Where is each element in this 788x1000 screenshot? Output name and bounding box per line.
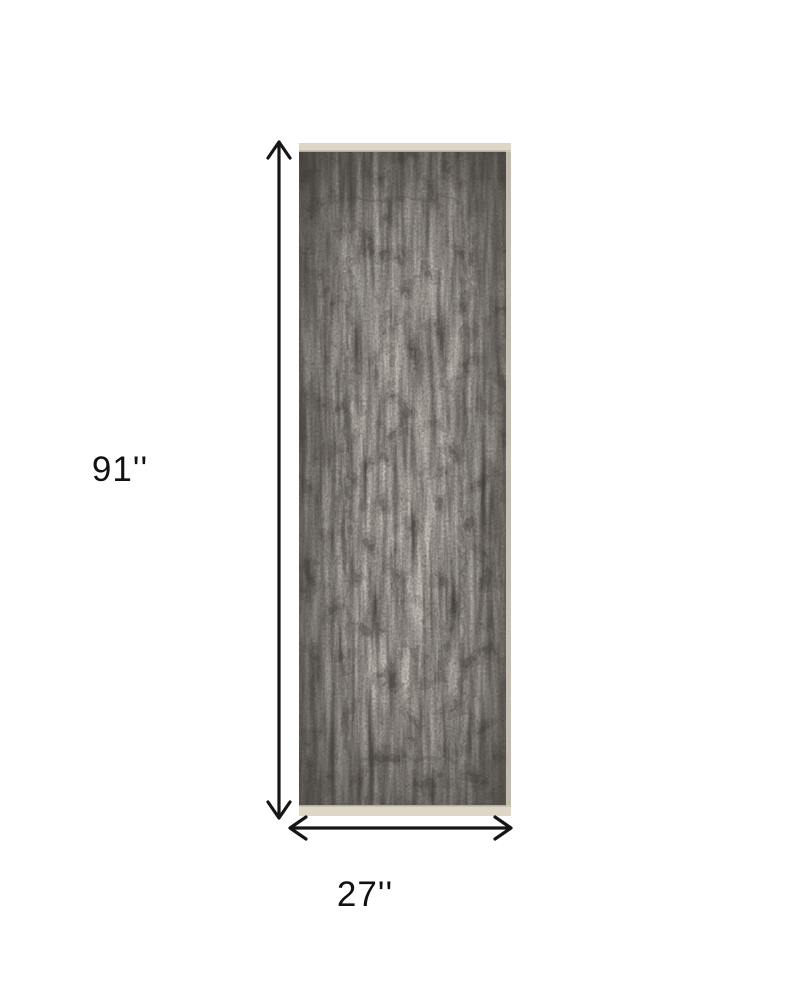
width-label: 27'' <box>337 875 393 915</box>
rug-dimension-diagram: 91'' 27'' <box>0 0 788 1000</box>
dimension-arrows <box>0 0 788 1000</box>
height-label: 91'' <box>92 450 148 490</box>
height-dimension-arrow <box>268 142 290 818</box>
width-dimension-arrow <box>290 817 511 839</box>
